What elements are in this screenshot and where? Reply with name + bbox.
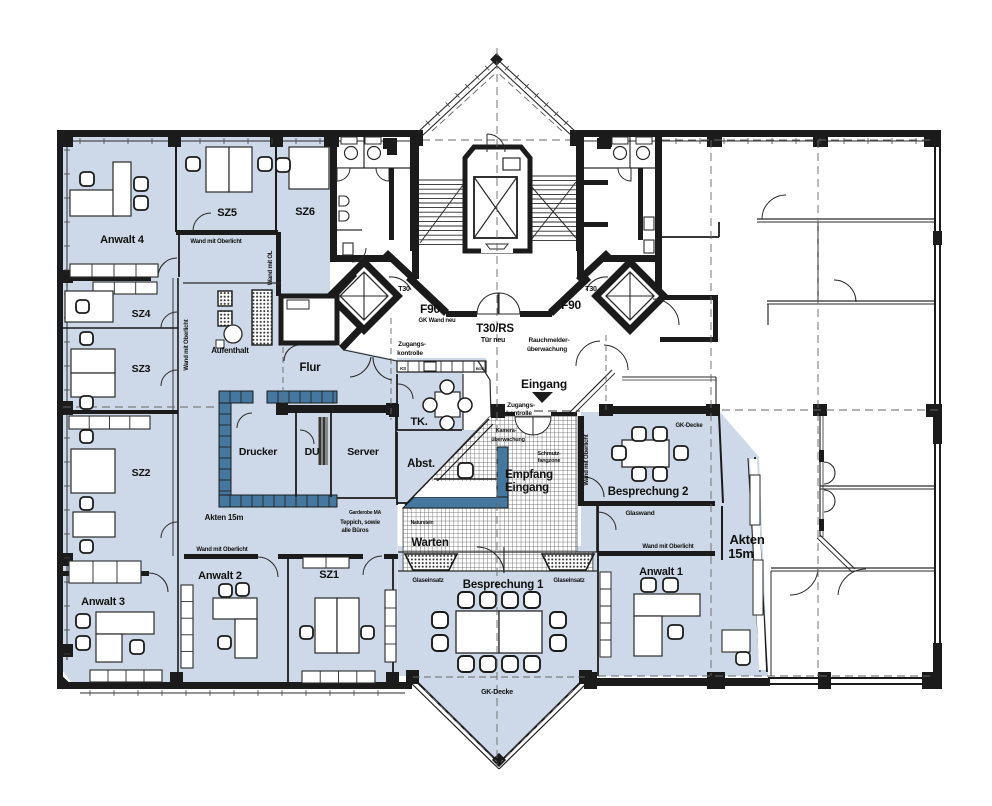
- svg-text:Wand mit Oberlicht: Wand mit Oberlicht: [642, 544, 693, 550]
- svg-text:Server: Server: [347, 446, 379, 458]
- svg-text:Eingang: Eingang: [521, 377, 567, 391]
- svg-text:alle Büros: alle Büros: [341, 528, 369, 534]
- svg-text:SZ1: SZ1: [319, 569, 339, 581]
- svg-text:Anwalt 4: Anwalt 4: [100, 234, 145, 246]
- svg-text:SZ4: SZ4: [132, 308, 151, 320]
- svg-text:Teppich, sowie: Teppich, sowie: [340, 520, 381, 526]
- svg-text:GK Wand neu: GK Wand neu: [419, 318, 456, 324]
- svg-text:DU: DU: [305, 446, 320, 458]
- svg-text:Flur: Flur: [300, 362, 322, 374]
- svg-text:15m: 15m: [728, 546, 753, 561]
- svg-text:Glaseinsatz: Glaseinsatz: [553, 578, 584, 584]
- svg-text:T30: T30: [585, 286, 597, 293]
- svg-text:Zugangs-: Zugangs-: [507, 402, 535, 409]
- svg-text:Zugangs-: Zugangs-: [398, 341, 426, 348]
- svg-text:Garderobe MA: Garderobe MA: [349, 510, 382, 516]
- svg-text:Anwalt 2: Anwalt 2: [198, 570, 242, 582]
- svg-text:SZ2: SZ2: [132, 467, 151, 479]
- svg-text:Drucker: Drucker: [239, 446, 277, 458]
- svg-text:Akten 15m: Akten 15m: [205, 513, 244, 522]
- svg-text:Eingang: Eingang: [505, 482, 549, 494]
- svg-text:fangzone: fangzone: [538, 458, 561, 464]
- svg-text:Besprechung 2: Besprechung 2: [608, 486, 688, 498]
- svg-text:Wand mit OL: Wand mit OL: [268, 250, 274, 285]
- svg-text:Akten: Akten: [729, 532, 764, 547]
- svg-text:Aufenthalt: Aufenthalt: [211, 346, 249, 355]
- svg-text:GK-Decke: GK-Decke: [675, 423, 703, 429]
- svg-text:SZ6: SZ6: [295, 206, 315, 218]
- svg-text:T30/RS: T30/RS: [476, 323, 514, 335]
- svg-text:Anwalt 1: Anwalt 1: [639, 566, 683, 578]
- svg-text:Wand mit Oberlicht: Wand mit Oberlicht: [190, 239, 241, 245]
- svg-text:Wand mit Oberlicht: Wand mit Oberlicht: [184, 319, 190, 370]
- svg-text:F90: F90: [420, 302, 441, 316]
- svg-text:GK-Decke: GK-Decke: [481, 689, 513, 696]
- svg-text:Wand mit Oberlicht: Wand mit Oberlicht: [584, 434, 590, 485]
- svg-text:Abst.: Abst.: [407, 458, 435, 470]
- svg-text:kontrolle: kontrolle: [397, 350, 423, 357]
- svg-text:Naturstein: Naturstein: [411, 520, 434, 526]
- svg-text:Glaseinsatz: Glaseinsatz: [412, 578, 443, 584]
- svg-text:SZ3: SZ3: [132, 363, 151, 375]
- svg-text:überwachung: überwachung: [491, 437, 525, 443]
- svg-text:Kamera-: Kamera-: [496, 428, 517, 434]
- svg-text:T30: T30: [398, 286, 410, 293]
- svg-text:kontrolle: kontrolle: [506, 410, 532, 417]
- svg-text:SZ5: SZ5: [217, 207, 237, 219]
- svg-text:Glaswand: Glaswand: [625, 510, 654, 517]
- svg-text:TK.: TK.: [410, 416, 427, 428]
- svg-text:überwachung: überwachung: [527, 346, 567, 353]
- svg-text:Schmutz-: Schmutz-: [537, 451, 561, 457]
- svg-text:Warten: Warten: [411, 537, 449, 549]
- svg-text:Wand mit Oberlicht: Wand mit Oberlicht: [196, 547, 247, 553]
- svg-text:F90: F90: [561, 298, 582, 312]
- svg-text:Anwalt 3: Anwalt 3: [81, 596, 125, 608]
- svg-text:Empfang: Empfang: [505, 469, 553, 481]
- svg-text:KS: KS: [400, 366, 406, 371]
- svg-text:Besprechung 1: Besprechung 1: [463, 579, 544, 591]
- svg-text:BOC: BOC: [476, 366, 485, 371]
- svg-text:Tür neu: Tür neu: [481, 337, 505, 344]
- svg-text:Rauchmelder-: Rauchmelder-: [529, 337, 570, 344]
